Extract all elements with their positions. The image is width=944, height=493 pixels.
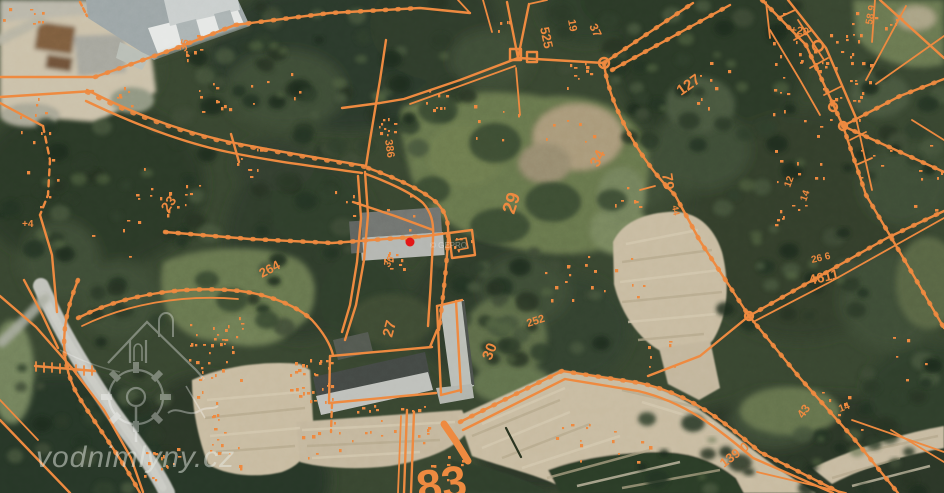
svg-text:vodnimlyny.cz: vodnimlyny.cz (36, 441, 235, 474)
svg-text:+4: +4 (22, 219, 34, 230)
svg-text:79: 79 (658, 172, 677, 191)
svg-text:44: 44 (670, 205, 682, 217)
svg-text:386: 386 (382, 139, 396, 159)
svg-text:19: 19 (565, 18, 579, 32)
svg-text:83: 83 (413, 455, 470, 493)
svg-text:© GEPRO: © GEPRO (430, 241, 467, 250)
